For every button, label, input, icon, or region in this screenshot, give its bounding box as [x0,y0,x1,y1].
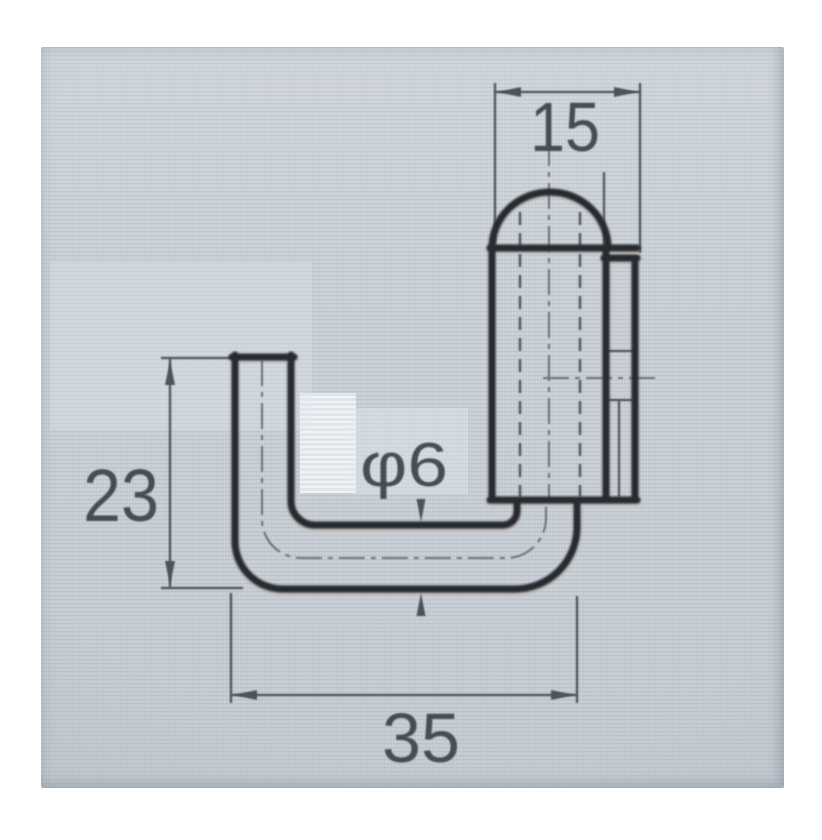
dim-top-width: 15 [495,83,640,253]
dim-15-arrow-right [614,87,638,97]
technical-drawing-svg: 15 23 φ6 [0,0,822,840]
dim-23-arrow-top [165,361,175,385]
dim-left-height: 23 [83,358,243,588]
dim-bottom-width: 35 [231,593,577,777]
dim-phi6-arrow-down [417,499,426,522]
dim-rod-diameter: φ6 [360,431,448,634]
center-lines-group [262,140,660,558]
dim-35-arrow-left [233,690,257,700]
dim-bottom-width-label: 35 [382,699,460,777]
dim-35-arrow-right [551,690,575,700]
dim-left-height-label: 23 [83,454,159,537]
dim-top-width-label: 15 [530,88,600,166]
dim-phi6-arrow-up [417,593,426,616]
screenshot-stage: 15 23 φ6 [0,0,822,840]
part-outline-group [232,192,637,589]
dim-23-arrow-bottom [165,561,175,585]
dim-15-arrow-left [497,87,521,97]
dim-rod-diameter-label: φ6 [360,431,448,500]
